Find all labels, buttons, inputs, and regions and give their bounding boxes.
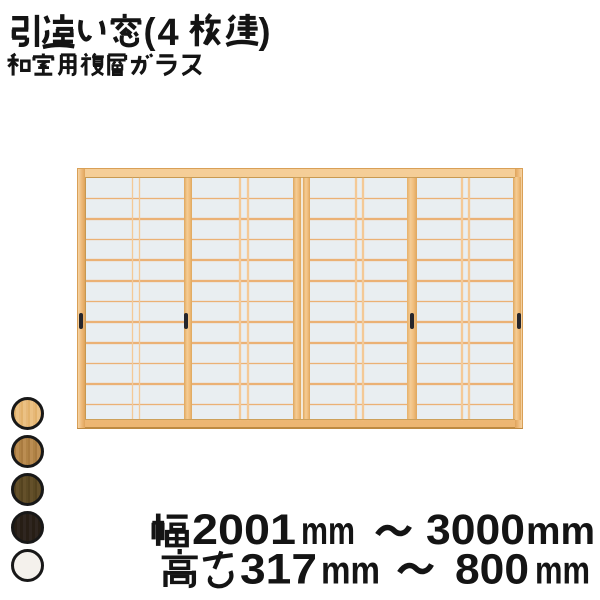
svg-text:mm: mm [321,550,380,593]
svg-text:3000: 3000 [426,506,525,550]
svg-text:4: 4 [158,12,179,54]
svg-text:mm: mm [526,510,595,550]
svg-text:): ) [259,11,271,52]
svg-text:(: ( [144,11,156,52]
svg-text:2001: 2001 [192,506,296,550]
svg-text:317: 317 [240,546,317,592]
svg-text:800: 800 [455,546,529,592]
svg-text:mm: mm [535,550,590,593]
svg-text:mm: mm [301,510,355,550]
